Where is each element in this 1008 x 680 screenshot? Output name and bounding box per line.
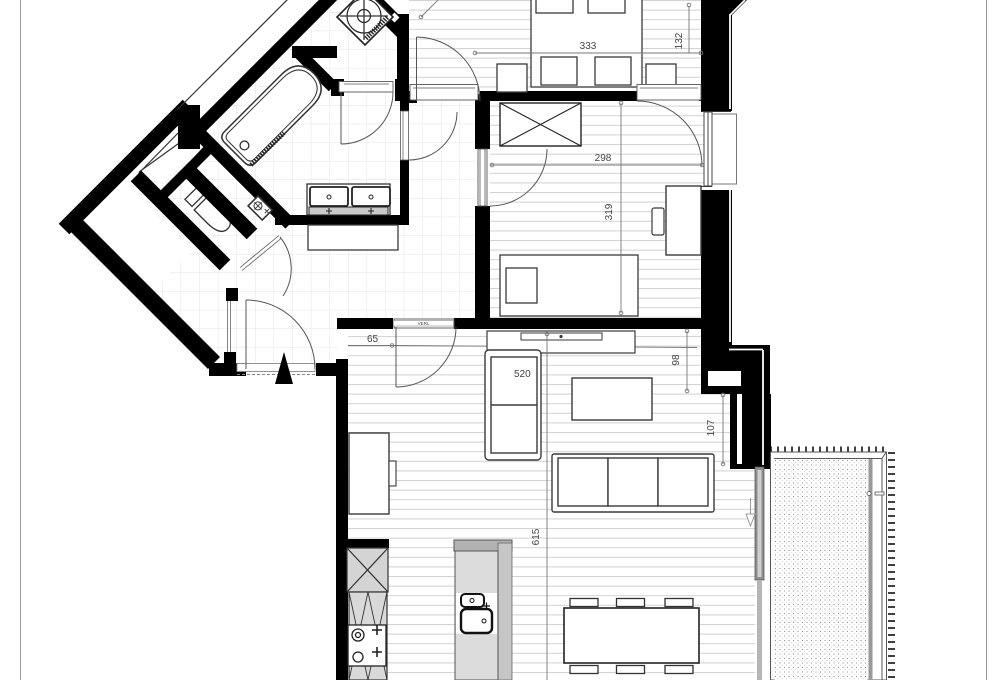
svg-text:520: 520	[514, 369, 531, 380]
svg-text:132: 132	[674, 32, 685, 49]
svg-text:298: 298	[595, 153, 612, 164]
svg-text:98: 98	[671, 354, 682, 366]
svg-text:615: 615	[531, 528, 542, 545]
svg-text:107: 107	[706, 419, 717, 436]
svg-text:VERL: VERL	[418, 321, 430, 326]
svg-text:319: 319	[604, 203, 615, 220]
svg-text:65: 65	[367, 334, 379, 345]
svg-text:333: 333	[580, 41, 597, 52]
